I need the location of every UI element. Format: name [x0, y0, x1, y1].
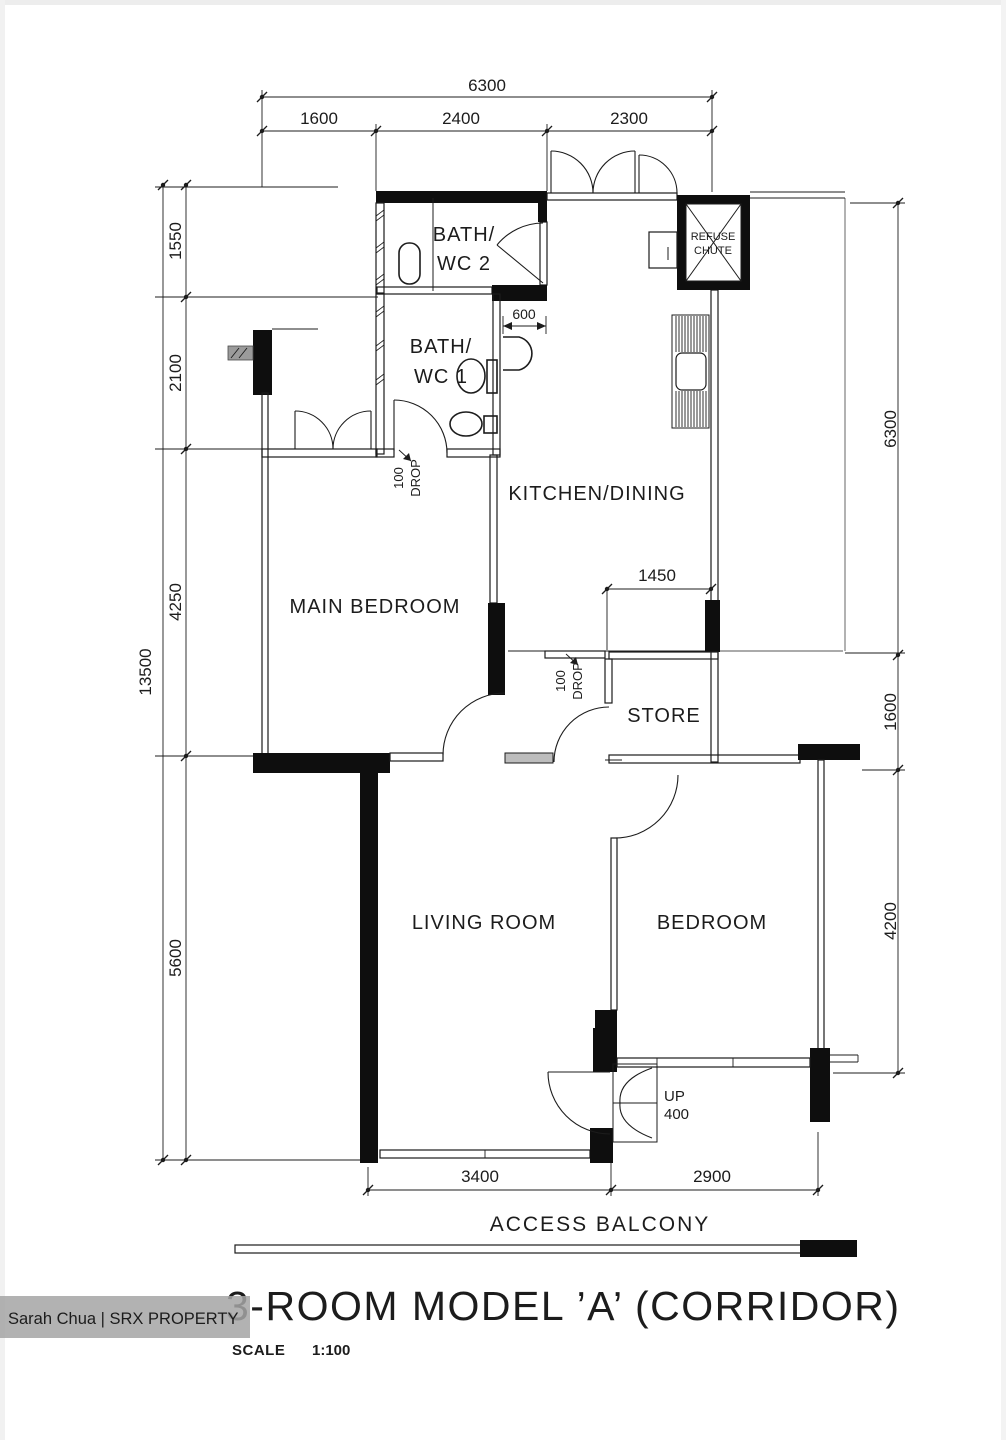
room-label-bathwc2-2: WC 2 [437, 253, 491, 275]
plan-title: 3-ROOM MODEL ’A’ (CORRIDOR) [226, 1283, 900, 1329]
wall-top-bathwc2 [376, 191, 547, 203]
scan-edge-right [1001, 0, 1006, 1440]
dim-left-total: 13500 [136, 648, 155, 695]
floor-plan: 6300 1600 2400 2300 13500 1550 2100 4250… [0, 0, 1006, 1440]
drop2-value: 100 [553, 670, 568, 692]
watermark: Sarah Chua | SRX PROPERTY [0, 1296, 250, 1338]
wall-pillar-mainbedroom [253, 330, 272, 395]
room-label-bathwc1-1: BATH/ [410, 336, 472, 358]
dim-kitchen-1450: 1450 [638, 566, 676, 585]
dim-top-1600: 1600 [300, 109, 338, 128]
room-label-bathwc1-2: WC 1 [414, 366, 468, 388]
room-label-bedroom: BEDROOM [657, 912, 767, 934]
wall-living-left [360, 755, 378, 1163]
dim-top-total: 6300 [468, 76, 506, 95]
room-label-kitchen: KITCHEN/DINING [508, 483, 685, 505]
dim-left-4250: 4250 [166, 583, 185, 621]
room-label-living: LIVING ROOM [412, 912, 556, 934]
scan-edge-left [0, 0, 5, 1440]
drop1-value: 100 [391, 467, 406, 489]
dim-left-1550: 1550 [166, 222, 185, 260]
refuse-chute-label-1: REFUSE [691, 231, 736, 243]
room-label-bathwc2-1: BATH/ [433, 224, 495, 246]
room-label-store: STORE [627, 705, 701, 727]
dim-left-5600: 5600 [166, 939, 185, 977]
drop1-word: DROP [408, 459, 423, 497]
dim-bottom-3400: 3400 [461, 1167, 499, 1186]
dim-bottom-2900: 2900 [693, 1167, 731, 1186]
refuse-hopper [649, 232, 677, 268]
dim-top-2400: 2400 [442, 109, 480, 128]
floor-plan-page: 6300 1600 2400 2300 13500 1550 2100 4250… [0, 0, 1006, 1440]
drop2-word: DROP [570, 662, 585, 700]
dim-top-2300: 2300 [610, 109, 648, 128]
up-value: 400 [664, 1106, 689, 1123]
dim-right-6300: 6300 [881, 410, 900, 448]
dim-door-600: 600 [512, 306, 536, 322]
scale-value: 1:100 [312, 1342, 350, 1359]
scale-label: SCALE [232, 1342, 285, 1359]
access-balcony-label: ACCESS BALCONY [490, 1213, 711, 1236]
refuse-chute-label-2: CHUTE [694, 245, 732, 257]
wall-stub [228, 346, 253, 360]
scan-edge-top [0, 0, 1006, 5]
room-label-main-bedroom: MAIN BEDROOM [290, 596, 461, 618]
watermark-text: Sarah Chua | SRX PROPERTY [8, 1310, 239, 1328]
dim-left-2100: 2100 [166, 354, 185, 392]
dim-right-1600: 1600 [881, 693, 900, 731]
up-label: UP [664, 1088, 685, 1105]
dim-right-4200: 4200 [881, 902, 900, 940]
